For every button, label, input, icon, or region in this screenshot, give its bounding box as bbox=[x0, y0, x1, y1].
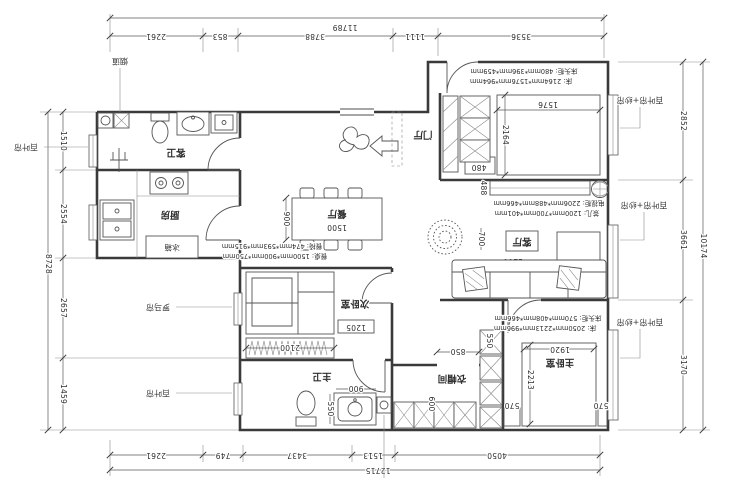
master-bathroom: 900 550 主卫 bbox=[296, 371, 391, 479]
annotation-tea-table: 茶几: 1200mm*700mm*401mm bbox=[495, 209, 600, 218]
dim-left-1: 1510 bbox=[59, 131, 68, 151]
label-blind-sheer-2: 百叶帘+纱帘 bbox=[621, 201, 668, 211]
dim-vanity-900: 900 bbox=[349, 384, 364, 393]
dimension-chain-bottom: 2261 749 3437 1513 4050 12715 bbox=[107, 451, 603, 475]
label-blind-sheer-3: 百叶帘+纱帘 bbox=[617, 318, 664, 328]
dim-bottom-3: 3437 bbox=[287, 451, 307, 460]
dim-bottom-2: 749 bbox=[216, 451, 231, 460]
cloakroom: 850 550 600 衣帽间 bbox=[394, 330, 502, 428]
shoe-cabinet bbox=[443, 96, 458, 172]
room-label-second-bedroom: 次卧室 bbox=[340, 298, 369, 310]
dim-tv-488: 488 bbox=[479, 181, 488, 196]
dim-top-4: 1111 bbox=[405, 32, 425, 41]
dim-hall-850: 850 bbox=[451, 347, 466, 356]
annotation-master-bed: 床: 2050mm*2213mm*996mm bbox=[494, 324, 596, 333]
dim-closet-550: 550 bbox=[485, 334, 494, 349]
room-label-kitchen: 厨房 bbox=[160, 209, 179, 221]
dim-bottom-5: 4050 bbox=[487, 451, 507, 460]
dim-top-5: 3536 bbox=[511, 32, 531, 41]
annotation-bed2: 床: 2164mm*1576mm*964mm bbox=[470, 77, 572, 86]
dim-bed2-2164: 2164 bbox=[501, 125, 510, 145]
floor-plan-canvas: 11789 2261 853 3788 1111 3536 2261 749 3… bbox=[0, 0, 740, 500]
dim-vanity-550: 550 bbox=[326, 402, 335, 417]
label-fridge: 冰箱 bbox=[164, 243, 180, 253]
dim-bed2-1576: 1576 bbox=[538, 100, 558, 109]
guest-bathroom: 客卫 bbox=[98, 112, 237, 172]
dim-top-1: 2261 bbox=[146, 32, 166, 41]
dim-top-2: 853 bbox=[213, 32, 228, 41]
dim-right-total: 10174 bbox=[699, 234, 708, 259]
dim-left-4: 1459 bbox=[59, 384, 68, 404]
dim-nightstand2-480: 480 bbox=[472, 163, 487, 172]
vanity2-icon bbox=[334, 393, 376, 425]
entry-plant-icon bbox=[339, 127, 369, 152]
dimension-chain-left: 1510 2554 2657 1459 8728 bbox=[44, 109, 68, 433]
dim-nightstand-570-left: 570 bbox=[505, 401, 520, 410]
toilet2-icon bbox=[296, 417, 316, 426]
label-flue: 烟道 bbox=[112, 57, 128, 67]
window-west-bedroom-b bbox=[234, 383, 242, 415]
shower-drain-icon bbox=[110, 148, 128, 172]
dim-left-3: 2657 bbox=[59, 298, 68, 318]
room-label-dining: 餐厅 bbox=[327, 208, 348, 220]
plant-icon bbox=[592, 181, 609, 198]
annotation-tv-cabinet: 电视柜: 2206mm*488mm*466mm bbox=[493, 199, 604, 208]
dim-right-1: 2852 bbox=[679, 111, 688, 131]
entry-opening-dashed bbox=[392, 112, 402, 166]
dim-closet-600: 600 bbox=[427, 397, 436, 412]
dimension-chain-right: 2852 3661 3170 10174 bbox=[679, 59, 708, 433]
master-bedroom: 1920 2213 主卧室 570 570 床头柜: 570mm*408mm*4… bbox=[494, 314, 609, 427]
room-label-entry: 门厅 bbox=[413, 129, 433, 141]
window-west-kitchen bbox=[89, 205, 97, 240]
dim-master-2213: 2213 bbox=[526, 370, 535, 390]
dim-closet-2100: 2100 bbox=[280, 343, 300, 352]
annotation-dining-chair: 餐椅: 474mm*593mm*915mm bbox=[222, 242, 322, 251]
room-label-living: 客厅 bbox=[512, 236, 533, 248]
dim-top-3: 3788 bbox=[305, 32, 325, 41]
bedroom-2: 1576 2164 480 床头柜: 480mm*396mm*459mm 床: … bbox=[443, 67, 603, 178]
second-bedroom: 2100 1205 次卧室 bbox=[243, 272, 374, 358]
living-room: 488 客厅 700 1200 电视柜: 2206mm*488mm*466mm … bbox=[428, 181, 609, 299]
dim-left-total: 8728 bbox=[44, 254, 53, 274]
dim-desk-1205: 1205 bbox=[346, 323, 366, 332]
dim-table-1500: 1500 bbox=[327, 223, 347, 232]
dim-top-total: 11789 bbox=[333, 23, 358, 32]
window-east-bedroom2 bbox=[608, 95, 618, 155]
room-label-master-bath: 主卫 bbox=[312, 371, 332, 383]
room-label-cloakroom: 衣帽间 bbox=[438, 373, 467, 385]
sofa bbox=[452, 260, 606, 298]
dim-tea-700: 700 bbox=[477, 232, 486, 247]
dim-right-3: 3170 bbox=[679, 355, 688, 375]
window-west-bedroom-a bbox=[234, 293, 242, 325]
master-nightstand-right bbox=[598, 409, 607, 426]
washer-icon bbox=[98, 113, 113, 128]
annotation-master-nightstand: 床头柜: 570mm*408mm*466mm bbox=[495, 314, 602, 323]
room-label-master-bedroom: 主卧室 bbox=[545, 357, 574, 369]
label-blind-left-bottom: 百叶帘 bbox=[146, 389, 170, 399]
dim-nightstand-570-right: 570 bbox=[594, 401, 609, 410]
label-blind-left-top: 百叶帘 bbox=[14, 143, 38, 153]
dim-bottom-total: 12715 bbox=[366, 466, 391, 475]
dim-master-1920: 1920 bbox=[550, 345, 570, 354]
entry-hall: 门厅 bbox=[339, 109, 432, 166]
dining-area: 餐厅 1500 900 餐椅: 474mm*593mm*915mm 餐桌: 15… bbox=[222, 188, 382, 261]
annotation-bed2-nightstand: 床头柜: 480mm*396mm*459mm bbox=[471, 67, 578, 76]
washer2-icon bbox=[377, 397, 391, 413]
dim-right-2: 3661 bbox=[679, 230, 688, 250]
kitchen-sink-icon bbox=[100, 200, 134, 240]
window-east-living bbox=[608, 225, 618, 298]
room-label-guest-bath: 客卫 bbox=[166, 147, 187, 159]
annotation-dining-table: 餐桌: 1500mm*900mm*750mm bbox=[223, 252, 328, 261]
label-roman-shade: 罗马帘 bbox=[146, 303, 170, 313]
dim-bottom-1: 2261 bbox=[146, 451, 166, 460]
dim-left-2: 2554 bbox=[59, 204, 68, 224]
toilet-icon bbox=[151, 113, 169, 121]
window-west-bath bbox=[89, 135, 97, 167]
kitchen: 厨房 冰箱 bbox=[100, 170, 240, 258]
window-east-master bbox=[608, 330, 618, 420]
dimension-chain-top: 11789 2261 853 3788 1111 3536 bbox=[107, 15, 607, 41]
label-blind-sheer-1: 百叶帘+纱帘 bbox=[617, 96, 664, 106]
dim-table-900: 900 bbox=[282, 212, 291, 227]
entry-arrow-icon bbox=[370, 136, 398, 156]
dim-bottom-4: 1513 bbox=[363, 451, 383, 460]
